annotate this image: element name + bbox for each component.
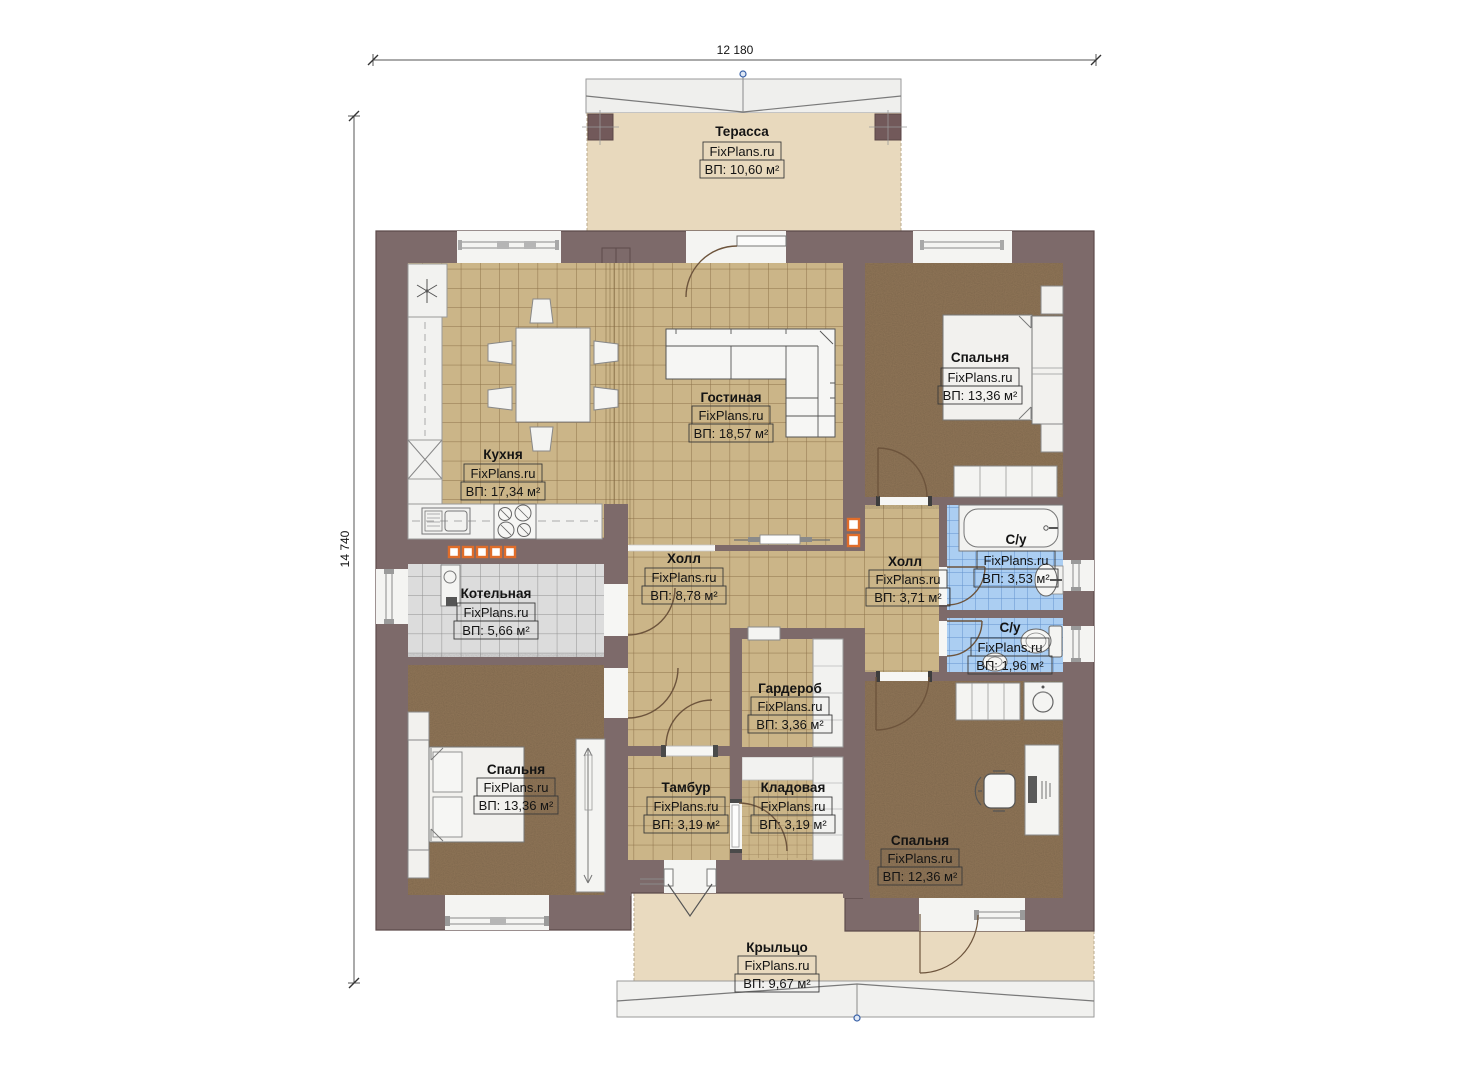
svg-text:FixPlans.ru: FixPlans.ru (887, 851, 952, 866)
svg-text:ВП: 1,96 м²: ВП: 1,96 м² (976, 658, 1044, 673)
svg-text:ВП: 3,53 м²: ВП: 3,53 м² (982, 571, 1050, 586)
svg-text:Тамбур: Тамбур (662, 780, 711, 795)
svg-text:FixPlans.ru: FixPlans.ru (463, 605, 528, 620)
svg-text:FixPlans.ru: FixPlans.ru (653, 799, 718, 814)
svg-text:14 740: 14 740 (338, 530, 352, 567)
svg-text:С/у: С/у (1005, 532, 1027, 547)
svg-text:FixPlans.ru: FixPlans.ru (977, 640, 1042, 655)
svg-text:FixPlans.ru: FixPlans.ru (760, 799, 825, 814)
svg-text:FixPlans.ru: FixPlans.ru (651, 570, 716, 585)
svg-text:ВП: 13,36 м²: ВП: 13,36 м² (943, 388, 1018, 403)
svg-text:ВП: 9,67 м²: ВП: 9,67 м² (743, 976, 811, 991)
svg-text:FixPlans.ru: FixPlans.ru (875, 572, 940, 587)
svg-text:FixPlans.ru: FixPlans.ru (947, 370, 1012, 385)
svg-text:FixPlans.ru: FixPlans.ru (698, 408, 763, 423)
svg-text:Холл: Холл (888, 554, 922, 569)
svg-text:Спальня: Спальня (951, 350, 1009, 365)
svg-text:ВП: 12,36 м²: ВП: 12,36 м² (883, 869, 958, 884)
svg-text:FixPlans.ru: FixPlans.ru (470, 466, 535, 481)
svg-text:Котельная: Котельная (461, 586, 532, 601)
svg-text:ВП: 3,71 м²: ВП: 3,71 м² (874, 590, 942, 605)
svg-text:FixPlans.ru: FixPlans.ru (483, 780, 548, 795)
svg-text:FixPlans.ru: FixPlans.ru (757, 699, 822, 714)
svg-text:FixPlans.ru: FixPlans.ru (709, 144, 774, 159)
svg-text:С/у: С/у (999, 620, 1021, 635)
svg-text:12 180: 12 180 (717, 43, 754, 57)
svg-text:Гардероб: Гардероб (758, 681, 822, 696)
svg-text:ВП: 13,36 м²: ВП: 13,36 м² (479, 798, 554, 813)
svg-text:ВП: 8,78 м²: ВП: 8,78 м² (650, 588, 718, 603)
svg-text:ВП: 17,34 м²: ВП: 17,34 м² (466, 484, 541, 499)
svg-text:Крыльцо: Крыльцо (746, 940, 807, 955)
svg-text:ВП: 3,36 м²: ВП: 3,36 м² (756, 717, 824, 732)
svg-text:ВП: 3,19 м²: ВП: 3,19 м² (652, 817, 720, 832)
svg-text:ВП: 5,66 м²: ВП: 5,66 м² (462, 623, 530, 638)
svg-text:ВП: 10,60 м²: ВП: 10,60 м² (705, 162, 780, 177)
svg-text:Кладовая: Кладовая (761, 780, 826, 795)
svg-text:ВП: 18,57 м²: ВП: 18,57 м² (694, 426, 769, 441)
svg-text:ВП: 3,19 м²: ВП: 3,19 м² (759, 817, 827, 832)
svg-text:Терасса: Терасса (715, 124, 769, 139)
svg-text:Холл: Холл (667, 551, 701, 566)
svg-text:Гостиная: Гостиная (700, 390, 761, 405)
svg-text:Спальня: Спальня (891, 833, 949, 848)
svg-text:FixPlans.ru: FixPlans.ru (983, 553, 1048, 568)
svg-text:Спальня: Спальня (487, 762, 545, 777)
svg-text:FixPlans.ru: FixPlans.ru (744, 958, 809, 973)
svg-text:Кухня: Кухня (483, 447, 522, 462)
